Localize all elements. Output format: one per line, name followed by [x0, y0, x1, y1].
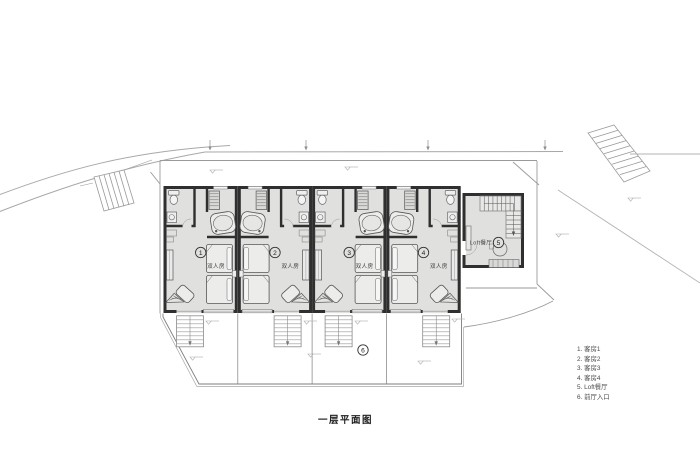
terrace-stairs	[177, 316, 450, 347]
floor-plan-page: 1 双人房 2 双人房 3 双人房 4 双人房 Loft餐厅 5 6 1. 客房…	[0, 0, 700, 462]
entry-number-bubble: 6	[358, 345, 368, 355]
svg-text:6: 6	[361, 347, 365, 354]
legend-item-4: 4. 客房4	[577, 374, 610, 384]
room-label: 双人房	[430, 262, 448, 270]
drawing-title: 一层平面图	[318, 412, 373, 426]
legend-item-5: 5. Loft餐厅	[577, 383, 610, 393]
svg-text:1: 1	[199, 250, 203, 257]
loft-restaurant	[462, 195, 523, 268]
legend-item-2: 2. 客房2	[577, 355, 610, 365]
bench-icon	[489, 260, 519, 268]
svg-text:3: 3	[347, 250, 351, 257]
loft-label: Loft餐厅	[470, 239, 492, 247]
stairs-hatch-top-right-icon	[588, 125, 650, 182]
ramp-hatch-left-icon	[80, 160, 152, 211]
svg-text:5: 5	[497, 240, 501, 247]
svg-text:4: 4	[422, 250, 426, 257]
site-tick-arrows	[208, 140, 546, 151]
legend: 1. 客房1 2. 客房2 3. 客房3 4. 客房4 5. Loft餐厅 6.…	[577, 345, 610, 403]
legend-item-6: 6. 前厅入口	[577, 393, 610, 403]
svg-text:2: 2	[273, 250, 277, 257]
terrace	[161, 314, 464, 387]
room-label: 双人房	[356, 262, 374, 270]
room-label: 双人房	[281, 262, 299, 270]
room-label: 双人房	[207, 262, 225, 270]
legend-item-3: 3. 客房3	[577, 364, 610, 374]
legend-item-1: 1. 客房1	[577, 345, 610, 355]
